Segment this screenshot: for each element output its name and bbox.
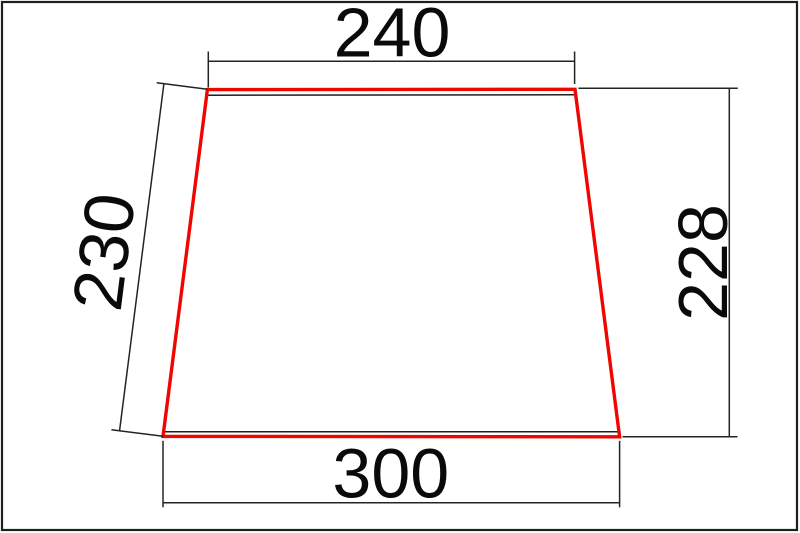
svg-text:228: 228 (664, 204, 742, 321)
svg-text:240: 240 (334, 0, 451, 72)
svg-text:230: 230 (58, 189, 150, 315)
svg-text:300: 300 (332, 435, 449, 513)
